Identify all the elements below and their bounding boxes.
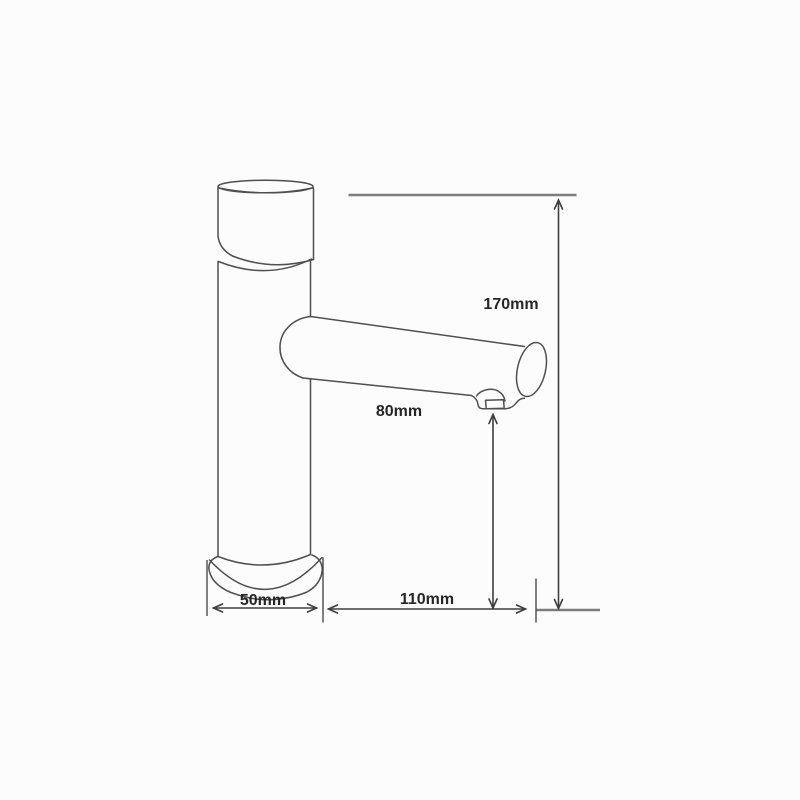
aerator-outlet-rect bbox=[486, 400, 505, 409]
spout-top-edge bbox=[311, 317, 525, 347]
technical-drawing-canvas: 170mm 80mm 110mm 50mm bbox=[0, 0, 800, 800]
handle-top-rim-arc bbox=[219, 188, 313, 193]
neck-shoulder-arc bbox=[219, 259, 312, 271]
dimension-label-spout-reach: 110mm bbox=[400, 591, 454, 608]
spout-end-ellipse bbox=[512, 340, 552, 400]
spout-bottom-edge bbox=[303, 378, 472, 396]
body-bottom-arc bbox=[218, 555, 311, 566]
base-rim-arc bbox=[210, 558, 323, 590]
dimension-label-outlet-height: 80mm bbox=[376, 403, 422, 420]
spout-left-cap bbox=[280, 317, 311, 379]
handle-left-edge bbox=[218, 188, 233, 257]
aerator-outline bbox=[472, 396, 525, 409]
faucet-dimension-diagram: 170mm 80mm 110mm 50mm bbox=[0, 0, 800, 800]
dimension-label-base-width: 50mm bbox=[240, 592, 286, 609]
dimension-label-total-height: 170mm bbox=[483, 296, 538, 313]
